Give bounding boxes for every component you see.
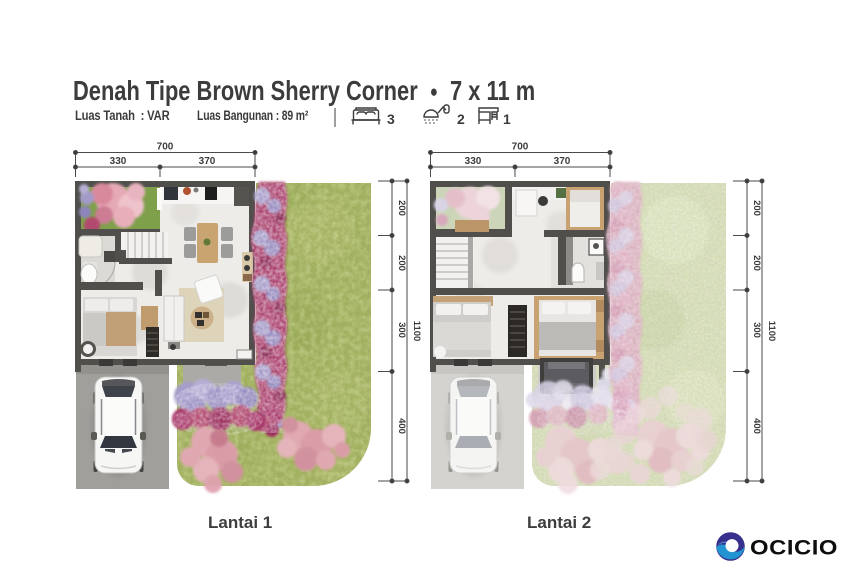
svg-text:1: 1 (503, 111, 511, 127)
svg-text:200: 200 (751, 200, 762, 216)
svg-text:1100: 1100 (766, 321, 777, 342)
svg-text:1100: 1100 (411, 321, 422, 342)
svg-text:300: 300 (751, 322, 762, 338)
svg-text:400: 400 (396, 418, 407, 434)
svg-text:370: 370 (554, 156, 571, 167)
svg-text:2: 2 (457, 111, 465, 127)
svg-text:300: 300 (396, 322, 407, 338)
svg-text:200: 200 (751, 255, 762, 271)
svg-text:370: 370 (199, 156, 216, 167)
svg-text:700: 700 (157, 142, 174, 153)
svg-text:330: 330 (465, 156, 482, 167)
svg-text:200: 200 (396, 200, 407, 216)
svg-text:400: 400 (751, 418, 762, 434)
svg-text:330: 330 (110, 156, 127, 167)
svg-text:OCICIO: OCICIO (750, 536, 838, 560)
svg-text:700: 700 (512, 142, 529, 153)
svg-text:200: 200 (396, 255, 407, 271)
svg-text:3: 3 (387, 111, 395, 127)
